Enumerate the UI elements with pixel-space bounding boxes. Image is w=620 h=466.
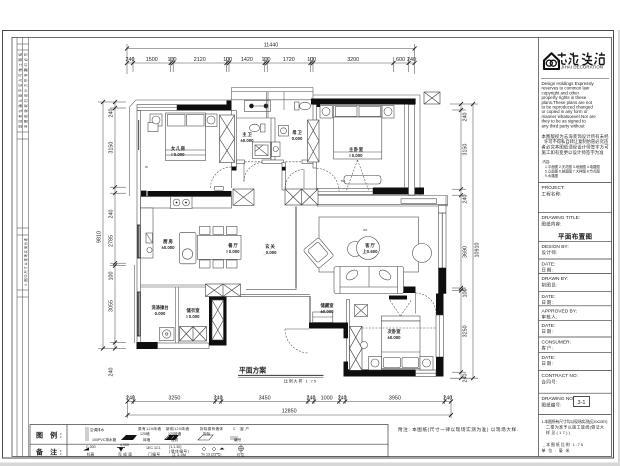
svg-text:JIHAI DECORATION: JIHAI DECORATION xyxy=(561,65,603,70)
svg-text:4.图中尺寸以现场实测为准: 4.图中尺寸以现场实测为准 xyxy=(23,237,28,286)
svg-text:玄关: 玄关 xyxy=(265,243,275,250)
svg-text:本图纸版权归设计方所有翻印必究: 本图纸版权归设计方所有翻印必究 xyxy=(23,52,28,128)
svg-text:120墙: 120墙 xyxy=(140,431,150,436)
svg-text:I 0.000: I 0.000 xyxy=(186,314,200,319)
svg-text:240: 240 xyxy=(126,57,135,63)
svg-text:240: 240 xyxy=(109,109,115,118)
svg-text:_0.000: _0.000 xyxy=(262,250,277,255)
svg-text:客户:: 客户: xyxy=(542,345,554,352)
svg-text:3150: 3150 xyxy=(463,144,469,156)
svg-text:240: 240 xyxy=(463,113,469,122)
svg-text:餐厅: 餐厅 xyxy=(228,242,238,249)
svg-text:12850: 12850 xyxy=(282,409,297,415)
svg-text:客厅: 客厅 xyxy=(364,242,375,249)
svg-text:内容:: 内容: xyxy=(543,159,551,164)
svg-text:编号: 编号 xyxy=(234,437,242,442)
svg-text:主卫: 主卫 xyxy=(242,131,252,138)
svg-text:11440: 11440 xyxy=(264,43,279,49)
svg-text:4.000: 4.000 xyxy=(120,443,129,447)
svg-text:制图员:: 制图员: xyxy=(542,282,558,289)
svg-text:±0.000: ±0.000 xyxy=(387,335,401,340)
svg-text:_本图纸比例 1:75: _本图纸比例 1:75 xyxy=(542,441,584,447)
svg-text:母卫: 母卫 xyxy=(292,129,302,136)
svg-text:0.000: 0.000 xyxy=(155,311,166,316)
svg-text:±0.000: ±0.000 xyxy=(240,138,254,143)
svg-text:灯位: 灯位 xyxy=(237,452,245,457)
svg-text:3450: 3450 xyxy=(259,396,271,402)
svg-text:CONTRACT NO:: CONTRACT NO: xyxy=(542,373,578,379)
svg-text:审核人:: 审核人: xyxy=(542,314,558,321)
svg-text:DRAWN BY:: DRAWN BY: xyxy=(542,276,569,282)
svg-text:100: 100 xyxy=(262,57,271,63)
svg-text:240: 240 xyxy=(109,368,115,377)
svg-text:3150: 3150 xyxy=(109,142,115,154)
svg-text:女儿房: 女儿房 xyxy=(171,145,186,152)
svg-text:±0.000: ±0.000 xyxy=(161,245,175,250)
svg-text:±0.000: ±0.000 xyxy=(320,309,334,314)
svg-text:240: 240 xyxy=(463,374,469,383)
svg-text:120砖墙: 120砖墙 xyxy=(168,431,182,436)
svg-text:2785: 2785 xyxy=(109,235,115,247)
svg-text:建设单位确认签字后方可施工图纸: 建设单位确认签字后方可施工图纸 xyxy=(18,52,23,128)
svg-text:240: 240 xyxy=(214,396,223,402)
svg-text:240: 240 xyxy=(307,396,316,402)
svg-text:储藏室: 储藏室 xyxy=(320,302,335,309)
svg-text:1720: 1720 xyxy=(283,57,295,63)
svg-text:二楼为准予以施工放线(做法大: 二楼为准予以施工放线(做法大 xyxy=(546,424,604,430)
svg-text:厨房: 厨房 xyxy=(163,238,173,245)
svg-text:C 窗户: C 窗户 xyxy=(233,426,249,431)
svg-text:轻质: 轻质 xyxy=(171,437,179,442)
svg-text:上0.600: 上0.600 xyxy=(362,248,378,255)
svg-text:9.水路图: 9.水路图 xyxy=(545,173,559,178)
svg-text:240: 240 xyxy=(407,57,416,63)
svg-text:0.000: 0.000 xyxy=(292,136,303,141)
svg-text:(1.1.30): (1.1.30) xyxy=(169,445,181,449)
svg-text:1420: 1420 xyxy=(241,57,253,63)
svg-text:C.300: C.300 xyxy=(86,445,96,449)
svg-text:3250: 3250 xyxy=(168,396,180,402)
svg-text:主卧室: 主卧室 xyxy=(349,146,364,153)
svg-text:1.平面图 2.天花图 3.地面图 4.电路图: 1.平面图 2.天花图 3.地面图 4.电路图 xyxy=(545,164,600,169)
svg-text:标高: 标高 xyxy=(87,452,95,457)
svg-text:拆除原有墙体: 拆除原有墙体 xyxy=(200,426,223,431)
svg-text:3950: 3950 xyxy=(389,396,401,402)
svg-text:平面布置图: 平面布置图 xyxy=(558,232,593,241)
svg-text:100: 100 xyxy=(168,57,177,63)
svg-text:5.立面图 6.剖面图 7.大样图 8.节点图: 5.立面图 6.剖面图 7.大样图 8.节点图 xyxy=(545,169,600,174)
svg-text:DRAWING NO:: DRAWING NO: xyxy=(542,396,575,402)
svg-text:600: 600 xyxy=(396,57,405,63)
svg-text:储衣室: 储衣室 xyxy=(186,307,201,314)
svg-text:新砌120砖墙: 新砌120砖墙 xyxy=(166,426,189,431)
svg-text:1.本图所有尺寸均以现场实测(见XX2257): 1.本图所有尺寸均以现场实测(见XX2257) xyxy=(542,418,609,424)
svg-text:拆除: 拆除 xyxy=(203,431,211,436)
svg-text:3%: 3% xyxy=(363,228,368,232)
svg-text:图纸内容:: 图纸内容: xyxy=(542,221,562,228)
svg-text:PROJECT:: PROJECT: xyxy=(542,185,565,191)
svg-text:3690: 3690 xyxy=(463,246,469,258)
svg-text:5%: 5% xyxy=(341,179,346,183)
svg-text:100PVC排水管: 100PVC排水管 xyxy=(92,437,117,442)
svg-text:工程名称:: 工程名称: xyxy=(542,191,562,198)
svg-text:240: 240 xyxy=(109,210,115,219)
svg-text:图纸编号:: 图纸编号: xyxy=(542,402,562,409)
svg-text:洗涤操台: 洗涤操台 xyxy=(152,304,170,311)
svg-text:施工如有变更以设计师签字为准: 施工如有变更以设计师签字为准 xyxy=(542,149,605,156)
svg-text:240: 240 xyxy=(338,396,347,402)
svg-text:原有120砖墙: 原有120砖墙 xyxy=(138,426,161,431)
svg-text:I 0.000: I 0.000 xyxy=(171,152,185,157)
svg-text:3055: 3055 xyxy=(109,300,115,312)
svg-text:100: 100 xyxy=(109,272,115,281)
svg-text:9810: 9810 xyxy=(97,231,103,243)
svg-text:1500: 1500 xyxy=(146,57,158,63)
svg-text:1000: 1000 xyxy=(321,396,333,402)
svg-text:3250: 3250 xyxy=(463,325,469,337)
svg-text:I 0.000: I 0.000 xyxy=(349,153,363,158)
svg-text:I 0.000: I 0.000 xyxy=(226,249,240,254)
svg-text:空调排水: 空调排水 xyxy=(90,427,105,432)
svg-text:100: 100 xyxy=(463,289,469,298)
svg-text:次卧室: 次卧室 xyxy=(388,328,402,335)
svg-text:10910: 10910 xyxy=(475,243,481,258)
svg-text:比例大样 1:75: 比例大样 1:75 xyxy=(284,379,316,384)
svg-text:设计师:: 设计师: xyxy=(542,249,558,256)
svg-text:240: 240 xyxy=(126,396,135,402)
svg-text:砖墙: 砖墙 xyxy=(143,437,151,442)
svg-text:100: 100 xyxy=(307,57,316,63)
svg-text:240: 240 xyxy=(443,396,452,402)
svg-text:2120: 2120 xyxy=(194,57,206,63)
svg-text:3200: 3200 xyxy=(347,57,359,63)
svg-text:完成面: 完成面 xyxy=(118,452,132,457)
svg-text:注 3-0M: 注 3-0M xyxy=(172,452,186,457)
svg-text:附注: 本图纸(尺寸一律以现场实测为准) 以现场大样.: 附注: 本图纸(尺寸一律以现场实测为准) 以现场大样. xyxy=(398,426,518,433)
svg-text:合同号:: 合同号: xyxy=(542,379,558,386)
svg-text:3-1: 3-1 xyxy=(578,400,586,406)
svg-text:门编号: 门编号 xyxy=(148,452,160,457)
svg-text:240: 240 xyxy=(463,195,469,204)
svg-text:any third party without: any third party without xyxy=(542,123,586,128)
svg-text:W: W xyxy=(145,165,148,169)
svg-text:Tv 13 (23℃): Tv 13 (23℃) xyxy=(201,453,221,457)
svg-text:样见(17)): 样见(17)) xyxy=(546,429,571,435)
svg-text:DRAWING TITLE:: DRAWING TITLE: xyxy=(542,215,581,221)
svg-text:平面方案: 平面方案 xyxy=(239,366,266,375)
svg-text:100: 100 xyxy=(223,57,232,63)
svg-text:1EC.1C1: 1EC.1C1 xyxy=(146,446,161,450)
